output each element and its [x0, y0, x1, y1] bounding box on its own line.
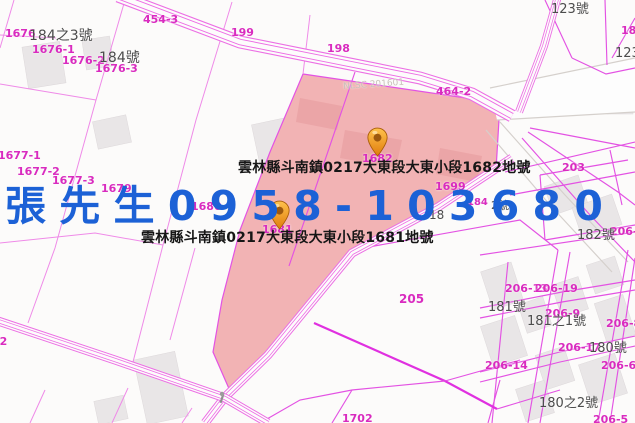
cadastral-map-canvas[interactable]: 16761676-11676-21676-3454-3199198464-220… [0, 0, 635, 423]
contact-phone-overlay: 張 先 生 0 9 5 8 - 1 0 3 6 8 0 [5, 184, 602, 229]
parcel-annotation-1681: 雲林縣斗南鎮0217大東段大東小段1681地號 [141, 231, 434, 246]
orange-map-pin-icon [367, 127, 388, 157]
parcel-annotation-1682: 雲林縣斗南鎮0217大東段大東小段1682地號 [238, 161, 531, 176]
map-pin-1682[interactable] [367, 127, 388, 157]
